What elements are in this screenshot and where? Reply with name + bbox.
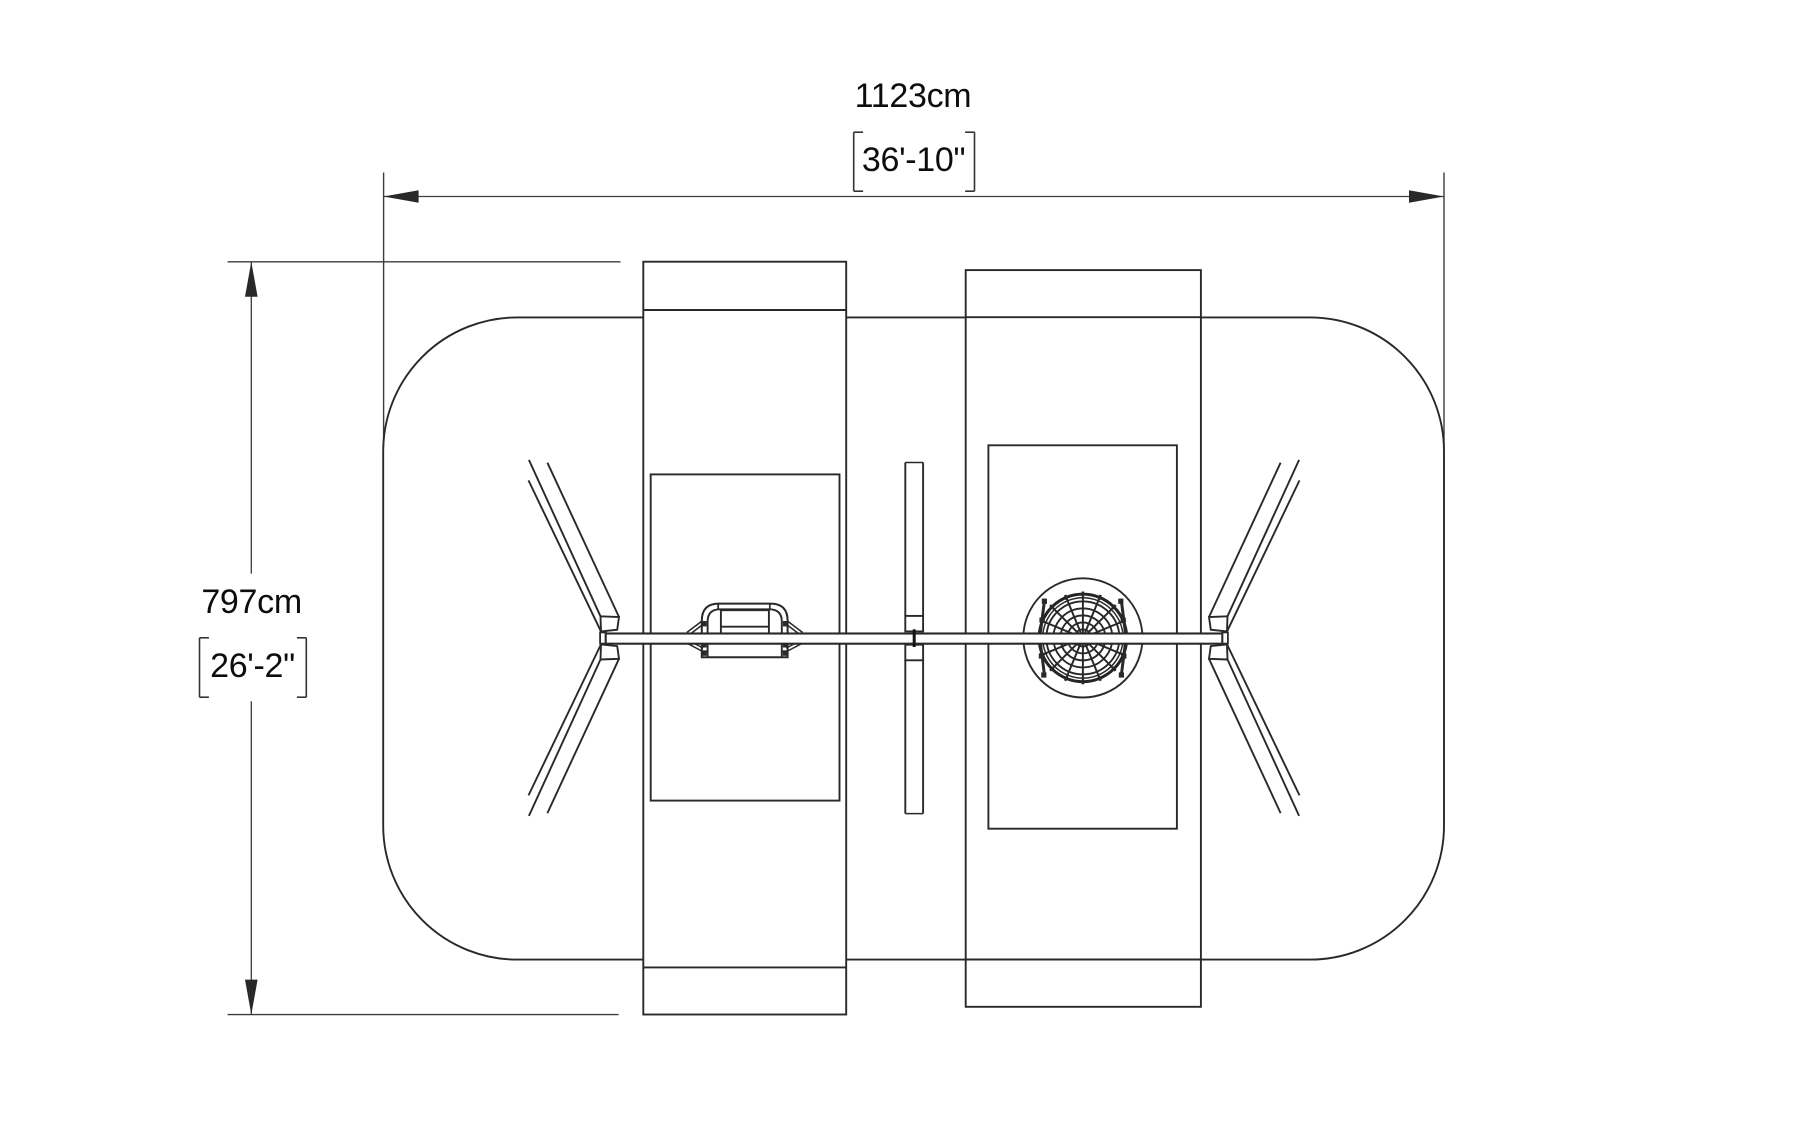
svg-text:26'-2": 26'-2" — [210, 647, 295, 685]
svg-text:797cm: 797cm — [201, 583, 302, 621]
svg-text:1123cm: 1123cm — [855, 77, 972, 115]
svg-text:36'-10": 36'-10" — [862, 141, 965, 179]
